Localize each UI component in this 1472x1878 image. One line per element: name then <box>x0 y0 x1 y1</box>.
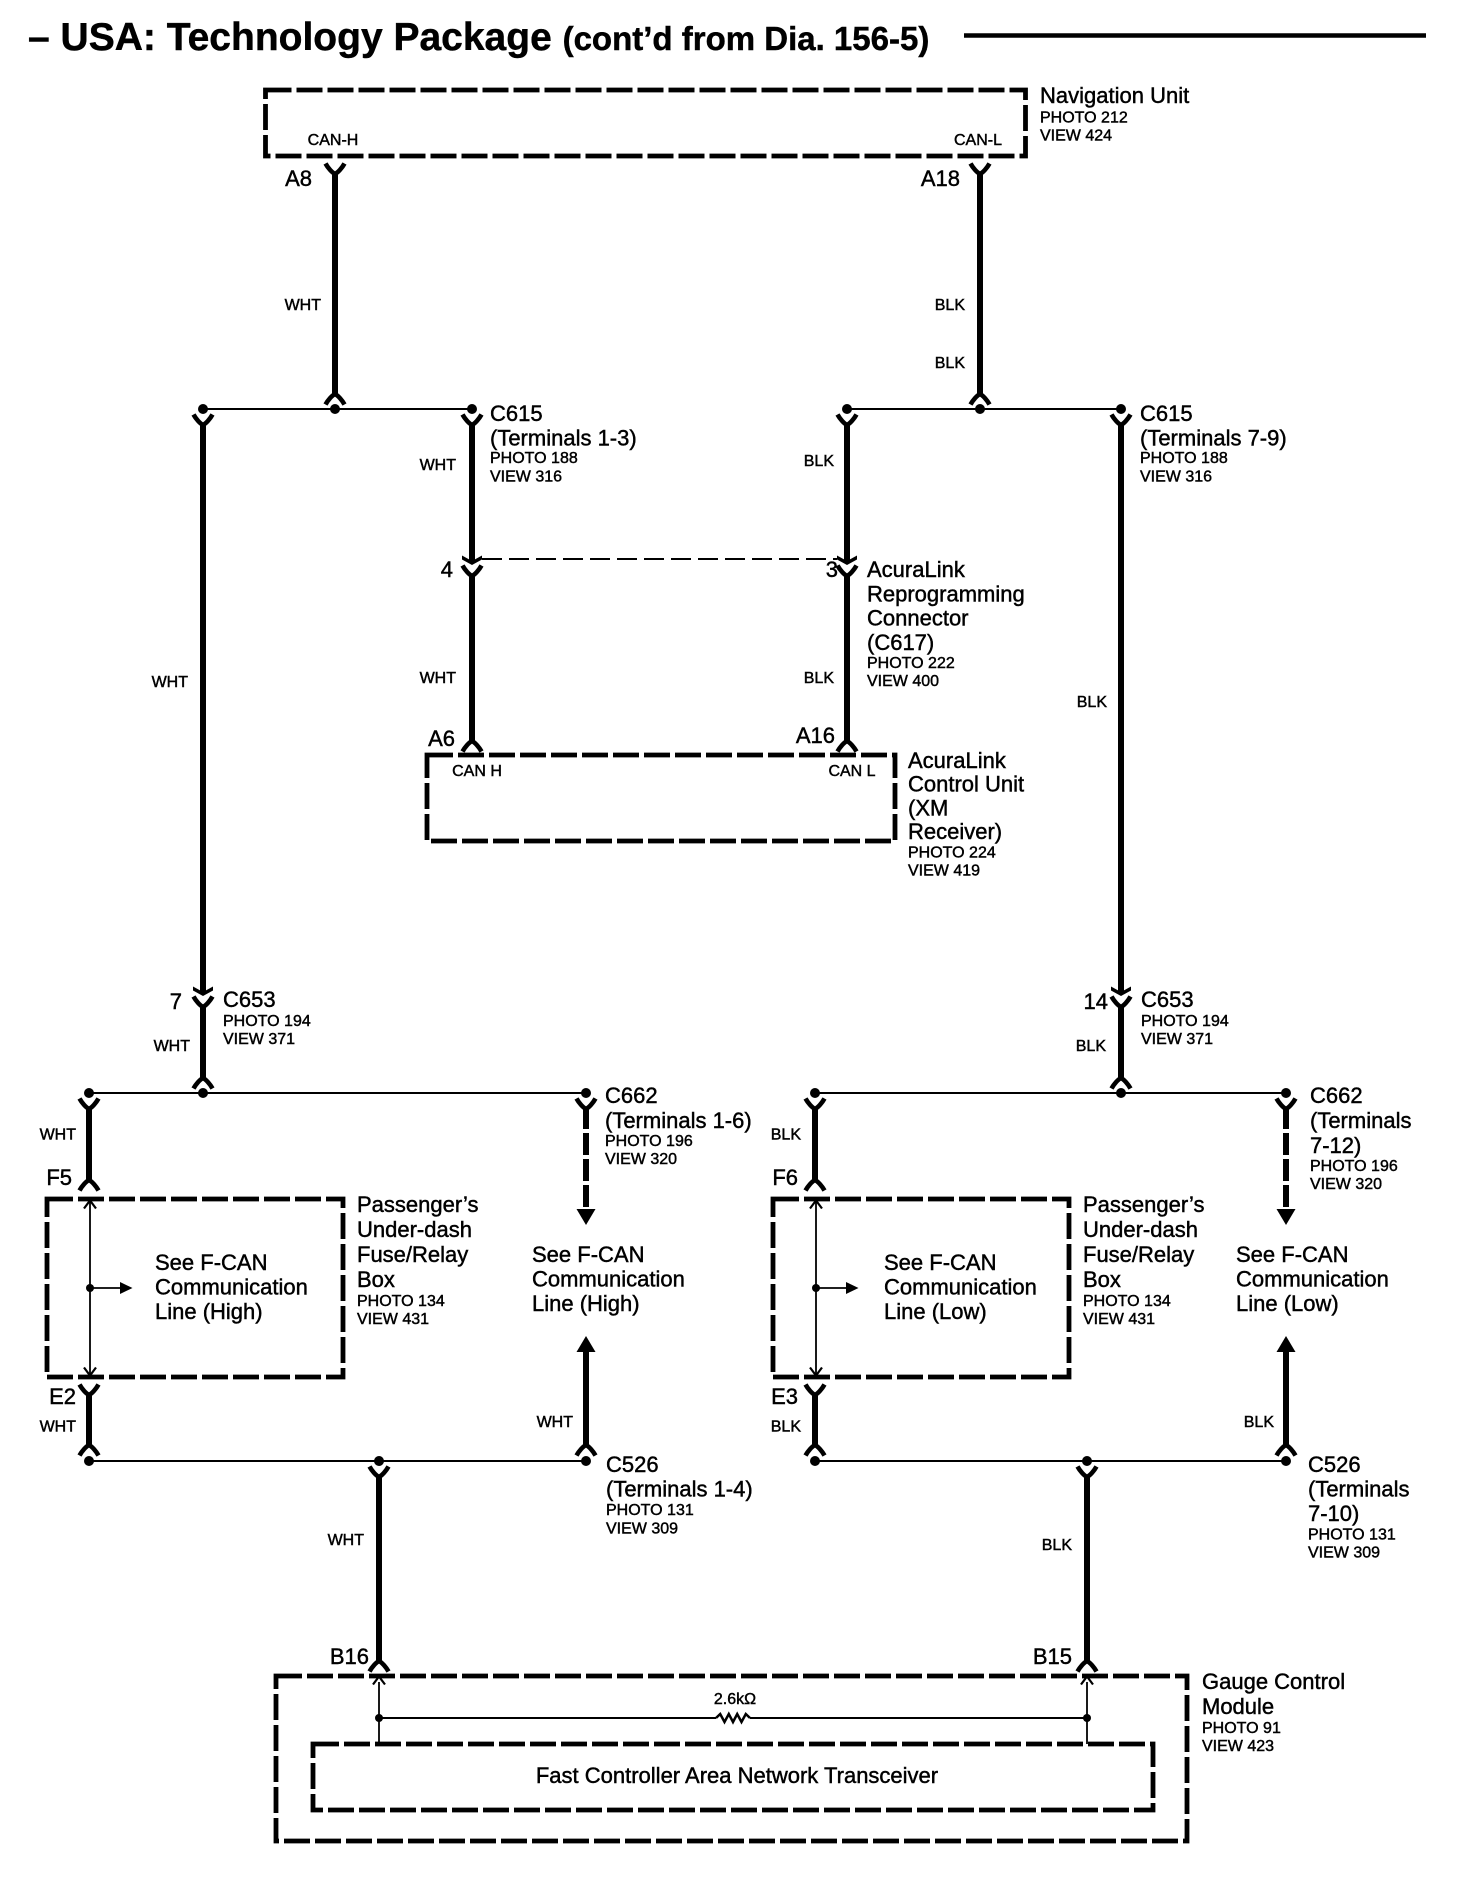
svg-text:CAN H: CAN H <box>452 763 502 780</box>
svg-text:See F-CAN: See F-CAN <box>155 1250 267 1275</box>
svg-text:PHOTO 134: PHOTO 134 <box>1083 1293 1171 1310</box>
svg-text:PHOTO 196: PHOTO 196 <box>1310 1158 1398 1175</box>
svg-text:CAN L: CAN L <box>828 763 875 780</box>
svg-text:PHOTO 91: PHOTO 91 <box>1202 1720 1281 1737</box>
svg-text:PHOTO 188: PHOTO 188 <box>1140 450 1228 467</box>
svg-text:Line (Low): Line (Low) <box>884 1299 987 1324</box>
svg-text:Control Unit: Control Unit <box>908 772 1024 797</box>
svg-text:VIEW 431: VIEW 431 <box>1083 1311 1155 1328</box>
svg-text:See F-CAN: See F-CAN <box>532 1242 644 1267</box>
svg-text:7-12): 7-12) <box>1310 1133 1361 1158</box>
svg-text:VIEW 419: VIEW 419 <box>908 863 980 880</box>
svg-text:PHOTO 196: PHOTO 196 <box>605 1133 693 1150</box>
svg-text:(Terminals 1-6): (Terminals 1-6) <box>605 1108 752 1133</box>
svg-text:(Terminals 1-3): (Terminals 1-3) <box>490 426 637 451</box>
svg-text:WHT: WHT <box>285 297 322 314</box>
svg-text:Box: Box <box>1083 1267 1121 1292</box>
svg-text:BLK: BLK <box>771 1127 802 1144</box>
svg-text:WHT: WHT <box>537 1414 574 1431</box>
svg-text:AcuraLink: AcuraLink <box>867 557 966 582</box>
svg-text:Fuse/Relay: Fuse/Relay <box>1083 1242 1194 1267</box>
svg-text:BLK: BLK <box>771 1419 802 1436</box>
svg-text:VIEW 320: VIEW 320 <box>605 1151 677 1168</box>
svg-text:VIEW 316: VIEW 316 <box>490 469 562 486</box>
svg-text:VIEW 309: VIEW 309 <box>606 1521 678 1538</box>
svg-text:Passenger’s: Passenger’s <box>1083 1192 1204 1217</box>
svg-text:VIEW 400: VIEW 400 <box>867 673 939 690</box>
svg-text:Passenger’s: Passenger’s <box>357 1192 478 1217</box>
svg-text:BLK: BLK <box>1042 1537 1073 1554</box>
svg-text:WHT: WHT <box>154 1038 191 1055</box>
svg-text:C615: C615 <box>1140 401 1193 426</box>
svg-text:See F-CAN: See F-CAN <box>884 1250 996 1275</box>
svg-text:C615: C615 <box>490 401 543 426</box>
svg-text:Under-dash: Under-dash <box>357 1217 472 1242</box>
svg-text:BLK: BLK <box>1244 1414 1275 1431</box>
svg-text:BLK: BLK <box>804 670 835 687</box>
svg-text:Box: Box <box>357 1267 395 1292</box>
svg-text:A18: A18 <box>921 166 960 191</box>
svg-text:Line (High): Line (High) <box>532 1291 640 1316</box>
svg-text:Line (High): Line (High) <box>155 1299 263 1324</box>
svg-text:PHOTO 222: PHOTO 222 <box>867 655 955 672</box>
svg-text:(C617): (C617) <box>867 630 934 655</box>
svg-text:Module: Module <box>1202 1694 1274 1719</box>
svg-text:2.6kΩ: 2.6kΩ <box>714 1691 756 1708</box>
svg-text:(Terminals: (Terminals <box>1310 1108 1411 1133</box>
svg-text:WHT: WHT <box>40 1419 77 1436</box>
svg-text:VIEW 371: VIEW 371 <box>223 1031 295 1048</box>
svg-text:See F-CAN: See F-CAN <box>1236 1242 1348 1267</box>
svg-text:VIEW 371: VIEW 371 <box>1141 1031 1213 1048</box>
svg-text:B16: B16 <box>330 1644 369 1669</box>
svg-text:PHOTO 194: PHOTO 194 <box>223 1013 311 1030</box>
svg-text:Fuse/Relay: Fuse/Relay <box>357 1242 468 1267</box>
svg-text:PHOTO 131: PHOTO 131 <box>1308 1527 1396 1544</box>
svg-text:Receiver): Receiver) <box>908 819 1002 844</box>
svg-text:F6: F6 <box>772 1165 798 1190</box>
svg-text:(XM: (XM <box>908 796 948 821</box>
svg-text:CAN-L: CAN-L <box>954 132 1002 149</box>
svg-text:WHT: WHT <box>420 457 457 474</box>
svg-text:WHT: WHT <box>328 1532 365 1549</box>
svg-text:Communication: Communication <box>884 1275 1037 1300</box>
svg-text:Navigation Unit: Navigation Unit <box>1040 83 1189 108</box>
svg-text:PHOTO 134: PHOTO 134 <box>357 1293 445 1310</box>
svg-text:C526: C526 <box>1308 1452 1361 1477</box>
svg-text:C526: C526 <box>606 1452 659 1477</box>
svg-text:(Terminals 7-9): (Terminals 7-9) <box>1140 426 1287 451</box>
svg-text:PHOTO 224: PHOTO 224 <box>908 845 996 862</box>
svg-text:(Terminals: (Terminals <box>1308 1477 1409 1502</box>
svg-text:VIEW 309: VIEW 309 <box>1308 1545 1380 1562</box>
svg-text:C653: C653 <box>1141 987 1194 1012</box>
svg-text:– USA: Technology Package (con: – USA: Technology Package (cont’d from D… <box>28 16 929 59</box>
svg-text:Line (Low): Line (Low) <box>1236 1291 1339 1316</box>
svg-text:BLK: BLK <box>1076 1038 1107 1055</box>
svg-text:CAN-H: CAN-H <box>308 132 359 149</box>
svg-text:BLK: BLK <box>804 453 835 470</box>
svg-text:4: 4 <box>441 557 453 582</box>
svg-text:A16: A16 <box>796 723 835 748</box>
svg-text:PHOTO 194: PHOTO 194 <box>1141 1013 1229 1030</box>
svg-text:A8: A8 <box>285 166 312 191</box>
svg-text:C653: C653 <box>223 987 276 1012</box>
svg-text:PHOTO 188: PHOTO 188 <box>490 450 578 467</box>
svg-text:VIEW 424: VIEW 424 <box>1040 128 1112 145</box>
svg-text:3: 3 <box>826 557 838 582</box>
svg-text:WHT: WHT <box>152 674 189 691</box>
svg-text:Communication: Communication <box>155 1275 308 1300</box>
svg-text:B15: B15 <box>1033 1644 1072 1669</box>
svg-text:Reprogramming: Reprogramming <box>867 582 1025 607</box>
svg-text:Fast Controller Area Network T: Fast Controller Area Network Transceiver <box>536 1763 938 1788</box>
svg-text:F5: F5 <box>46 1165 72 1190</box>
svg-text:C662: C662 <box>1310 1083 1363 1108</box>
svg-text:VIEW 423: VIEW 423 <box>1202 1738 1274 1755</box>
svg-text:VIEW 431: VIEW 431 <box>357 1311 429 1328</box>
svg-text:E2: E2 <box>49 1384 76 1409</box>
svg-text:WHT: WHT <box>40 1127 77 1144</box>
svg-text:C662: C662 <box>605 1083 658 1108</box>
svg-text:Communication: Communication <box>532 1267 685 1292</box>
svg-text:BLK: BLK <box>935 355 966 372</box>
svg-text:Communication: Communication <box>1236 1267 1389 1292</box>
svg-text:WHT: WHT <box>420 670 457 687</box>
svg-text:Connector: Connector <box>867 606 969 631</box>
svg-text:AcuraLink: AcuraLink <box>908 748 1007 773</box>
svg-text:7: 7 <box>170 989 182 1014</box>
svg-text:BLK: BLK <box>935 297 966 314</box>
svg-text:Under-dash: Under-dash <box>1083 1217 1198 1242</box>
svg-text:BLK: BLK <box>1077 694 1108 711</box>
svg-text:E3: E3 <box>771 1384 798 1409</box>
svg-text:7-10): 7-10) <box>1308 1501 1359 1526</box>
svg-text:VIEW 316: VIEW 316 <box>1140 469 1212 486</box>
svg-text:14: 14 <box>1084 989 1108 1014</box>
svg-text:PHOTO 212: PHOTO 212 <box>1040 110 1128 127</box>
svg-text:PHOTO 131: PHOTO 131 <box>606 1502 694 1519</box>
svg-text:A6: A6 <box>428 726 455 751</box>
svg-text:VIEW 320: VIEW 320 <box>1310 1176 1382 1193</box>
svg-text:Gauge Control: Gauge Control <box>1202 1669 1345 1694</box>
svg-text:(Terminals 1-4): (Terminals 1-4) <box>606 1477 753 1502</box>
